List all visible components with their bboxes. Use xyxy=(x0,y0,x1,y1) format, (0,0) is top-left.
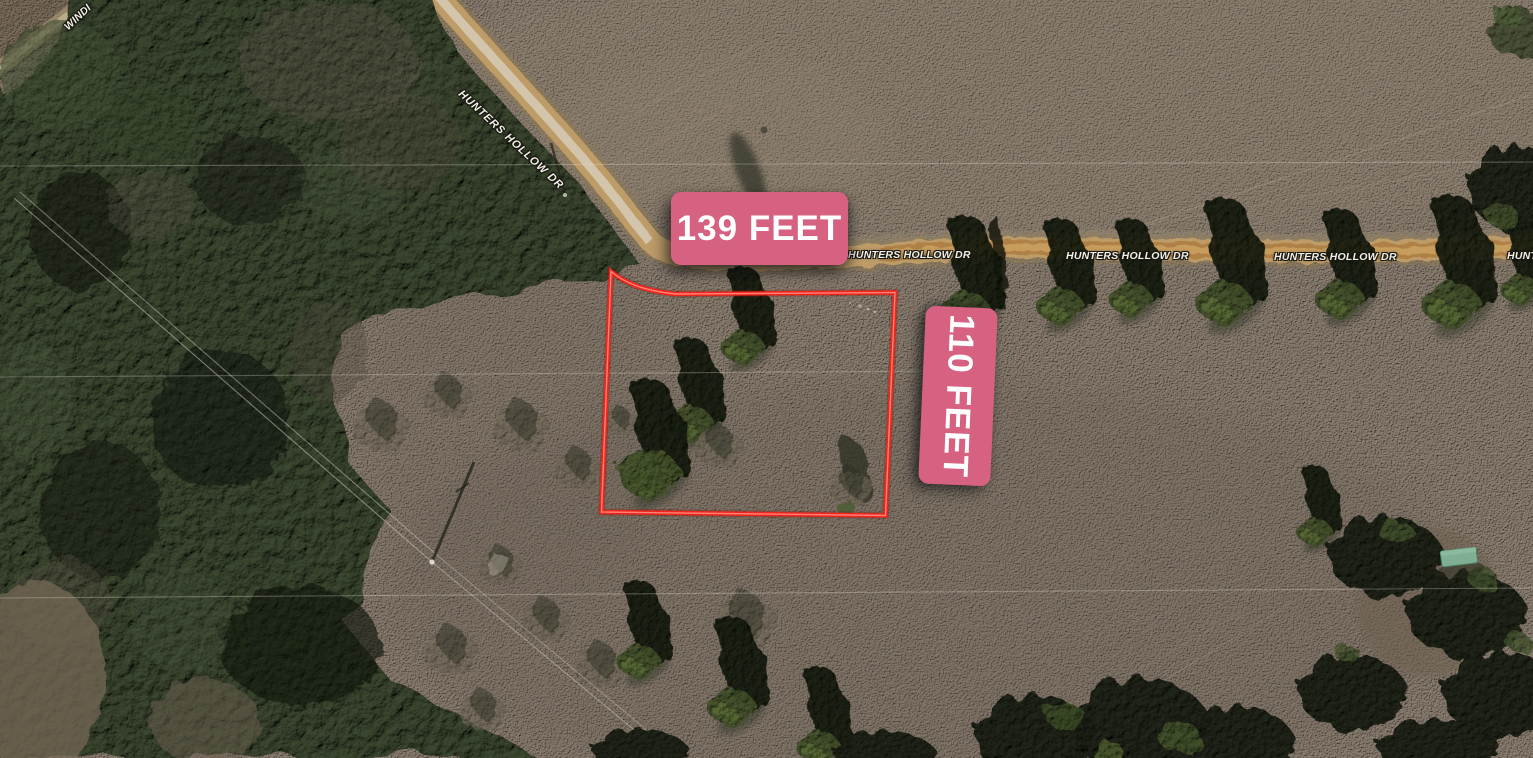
road-label-hunters-hollow-east-clipped: HUNTERS HOLLOW DR xyxy=(1507,250,1533,262)
satellite-imagery xyxy=(0,0,1533,758)
aerial-map-viewport[interactable]: HUNTERS HOLLOW DR HUNTERS HOLLOW DR HUNT… xyxy=(0,0,1533,758)
road-label-hunters-hollow-east-1: HUNTERS HOLLOW DR xyxy=(848,249,971,261)
width-dimension-badge: 139 FEET xyxy=(671,192,848,265)
road-label-hunters-hollow-east-3: HUNTERS HOLLOW DR xyxy=(1274,251,1397,263)
height-dimension-badge: 110 FEET xyxy=(918,306,998,487)
road-label-hunters-hollow-east-2: HUNTERS HOLLOW DR xyxy=(1066,250,1189,262)
